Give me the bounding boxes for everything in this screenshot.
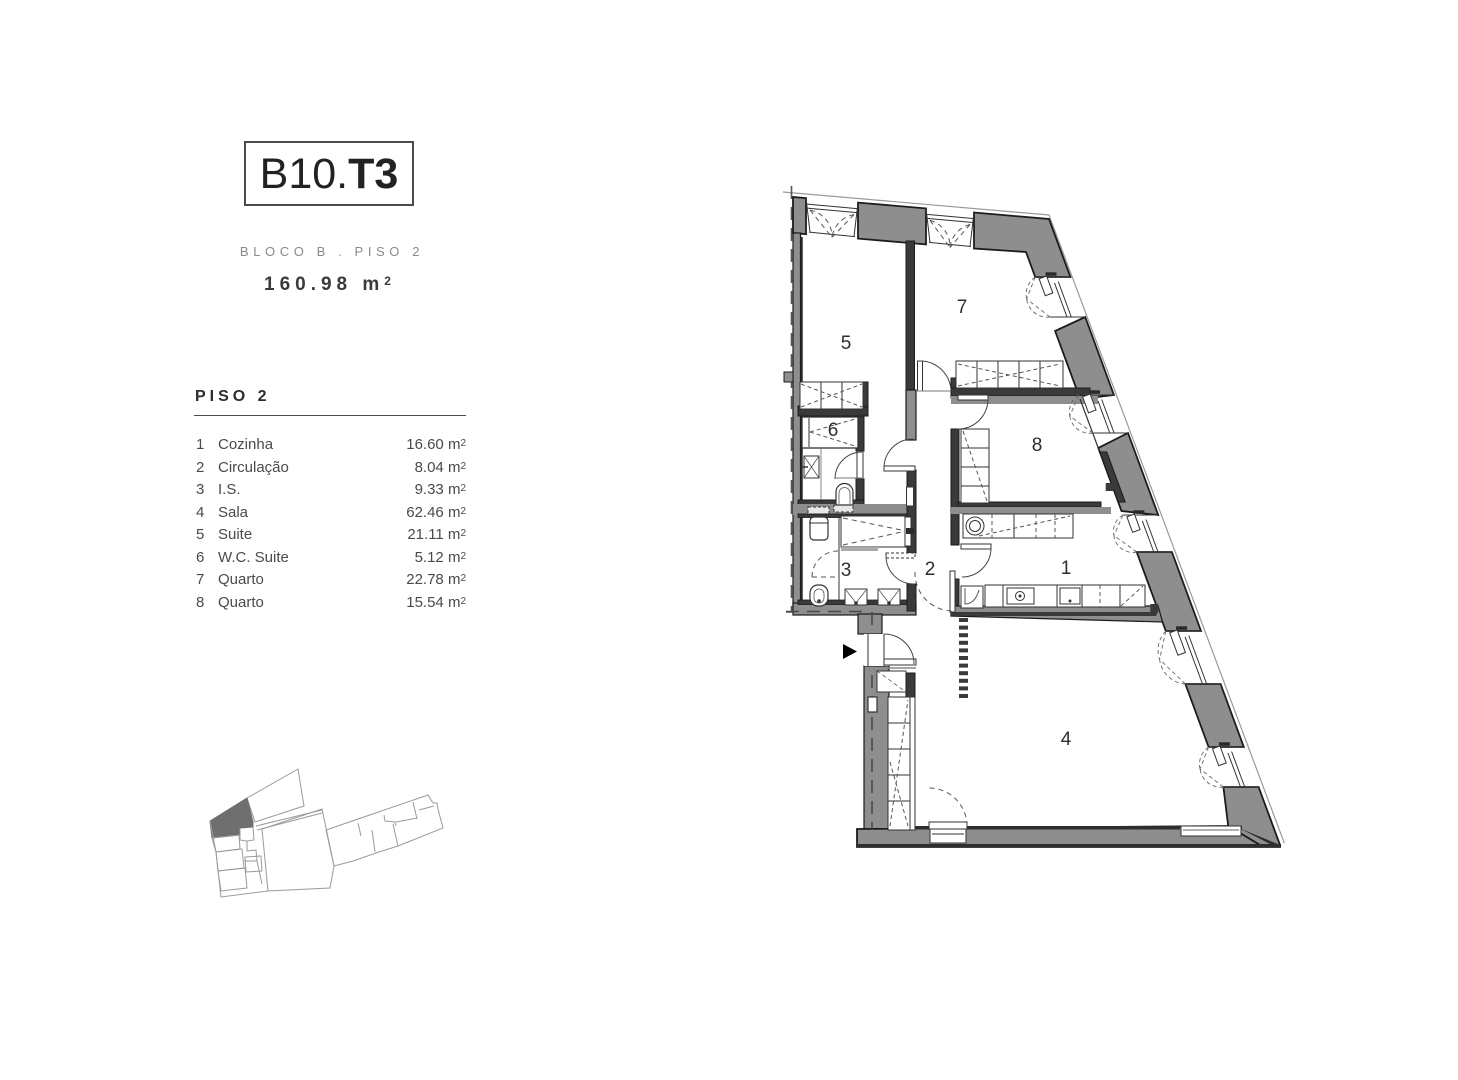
svg-text:2: 2 [925,559,936,580]
svg-text:8: 8 [1032,435,1043,456]
svg-text:3: 3 [841,560,852,581]
svg-text:5: 5 [841,333,852,354]
svg-text:7: 7 [957,297,968,318]
svg-text:4: 4 [1061,729,1072,750]
svg-text:1: 1 [1061,558,1072,579]
svg-text:6: 6 [828,420,839,441]
